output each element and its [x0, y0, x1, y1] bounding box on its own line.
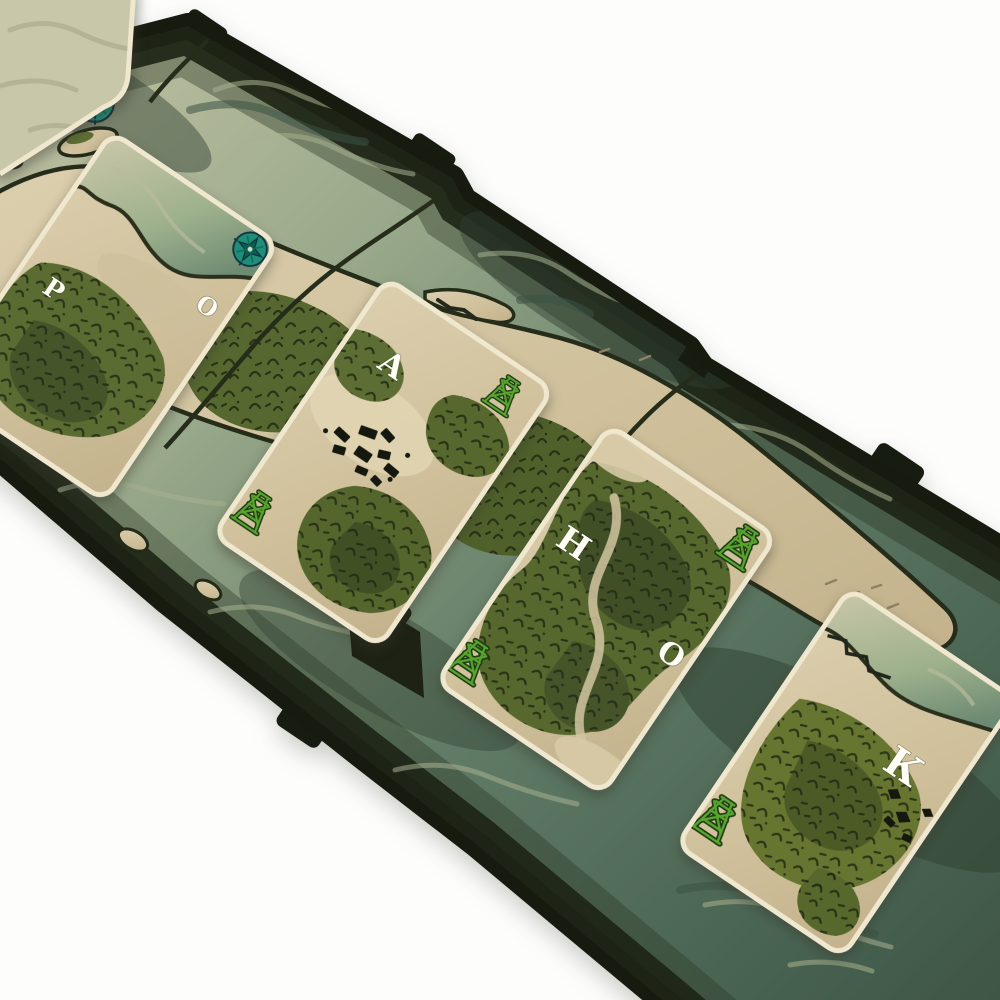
- board-photo: Р О А: [0, 0, 1000, 1000]
- photo-stage: Р О А: [0, 0, 1000, 1000]
